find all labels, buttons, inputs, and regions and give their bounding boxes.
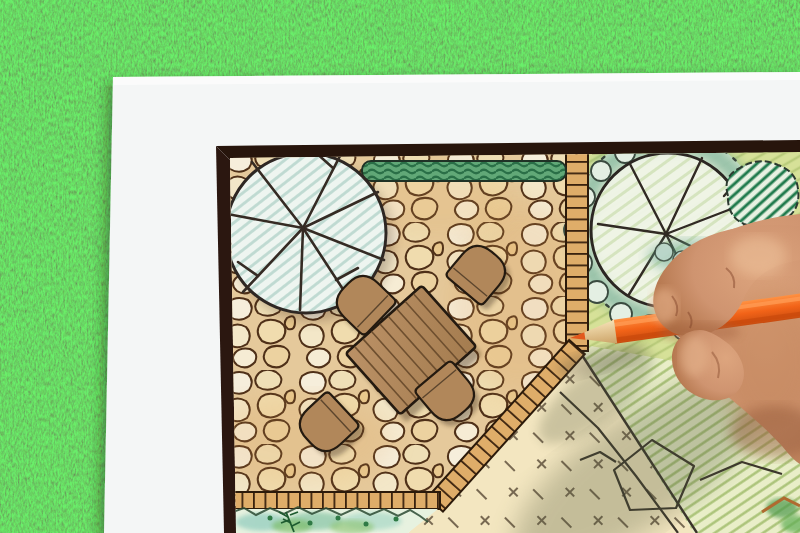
photo-garden-plan-drawing: Hand drawing a garden landscape plan wit… (0, 0, 800, 533)
tile-border-bottom (228, 492, 440, 509)
planting-bed-bottom (228, 507, 438, 533)
tile-border-right (566, 153, 588, 351)
hedge-strip (362, 161, 566, 181)
